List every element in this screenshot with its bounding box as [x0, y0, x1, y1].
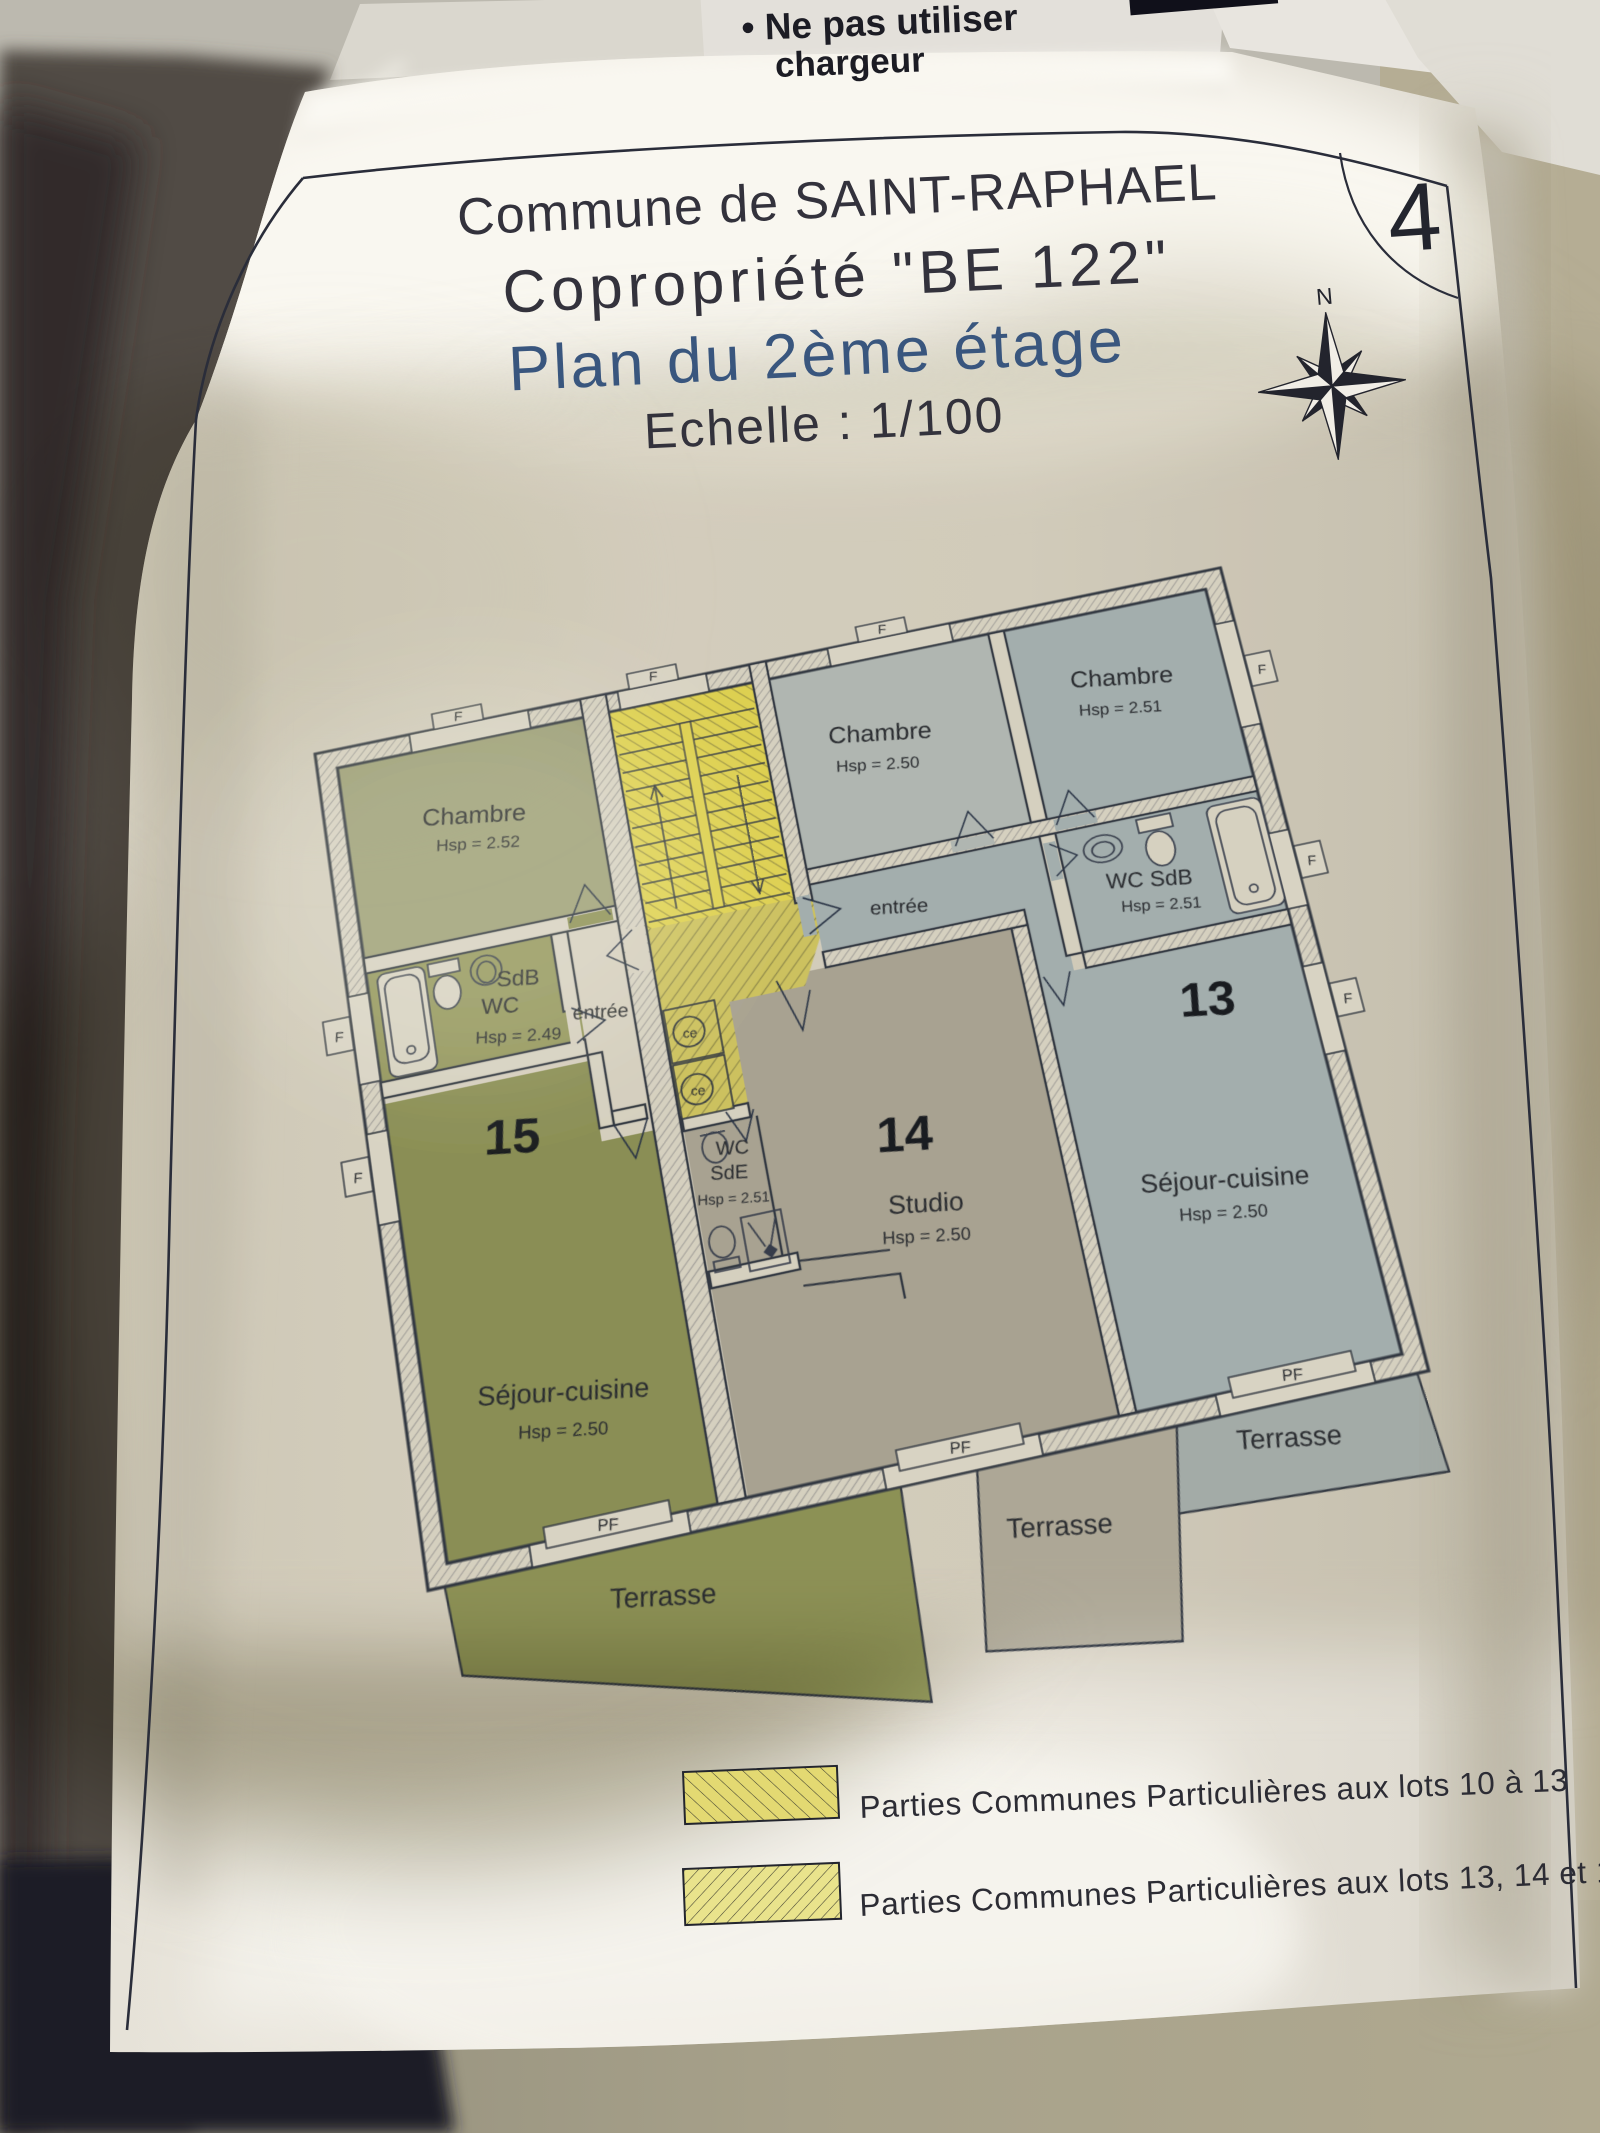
svg-text:4: 4 [1384, 162, 1445, 272]
svg-text:N: N [1315, 283, 1334, 310]
svg-text:chargeur: chargeur [774, 40, 926, 85]
